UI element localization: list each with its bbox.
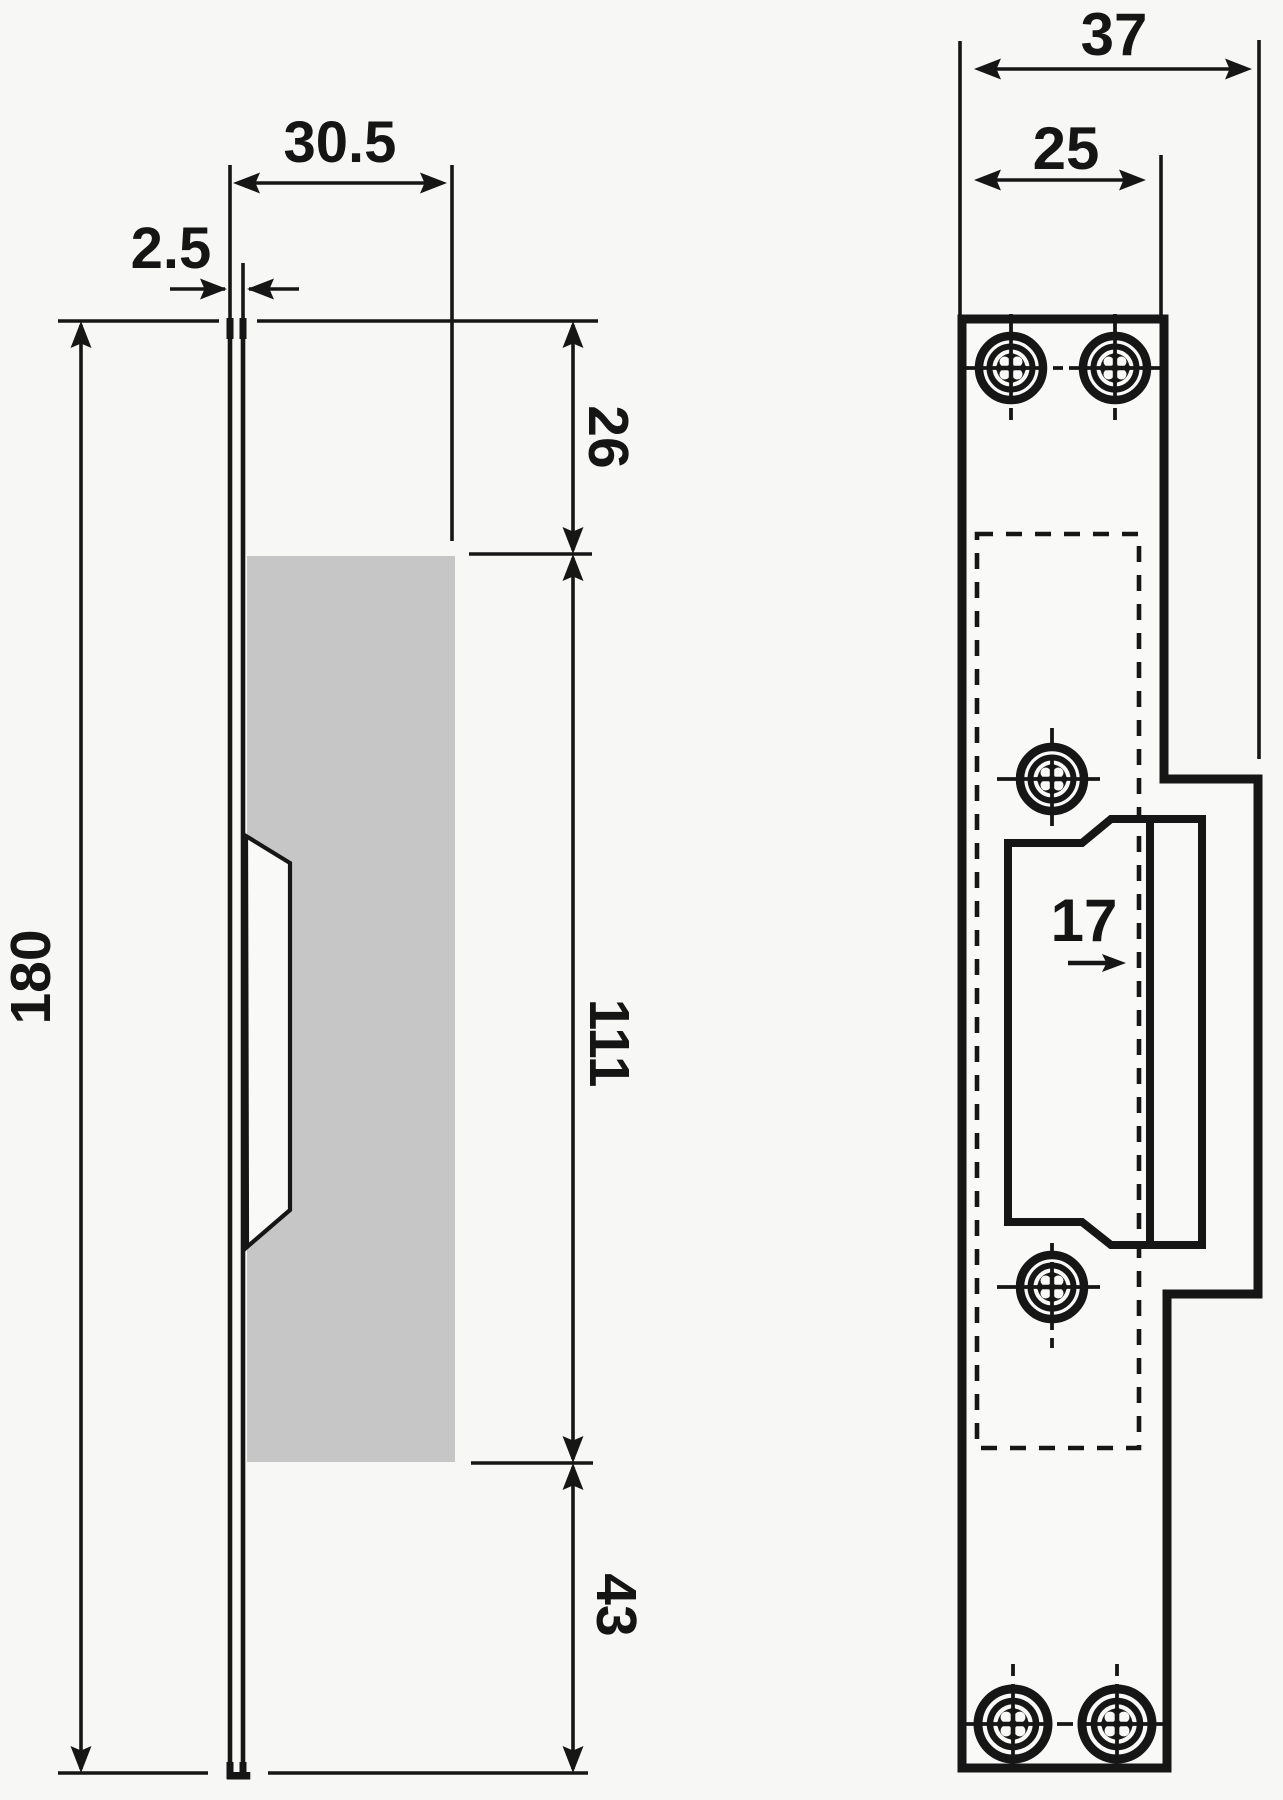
svg-text:17: 17: [1051, 887, 1118, 954]
svg-text:43: 43: [584, 1573, 648, 1636]
svg-text:180: 180: [0, 929, 63, 1024]
svg-text:37: 37: [1081, 1, 1148, 68]
svg-text:111: 111: [577, 999, 641, 1088]
svg-text:26: 26: [576, 405, 640, 468]
svg-text:2.5: 2.5: [131, 216, 212, 281]
svg-text:25: 25: [1033, 115, 1100, 182]
svg-text:30.5: 30.5: [284, 110, 397, 175]
